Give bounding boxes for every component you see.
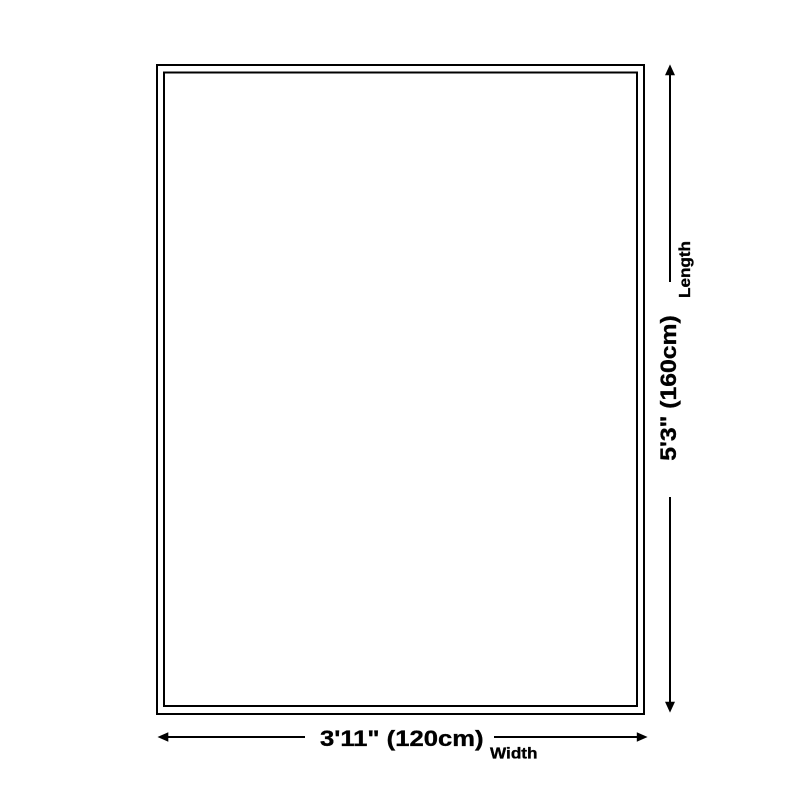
svg-text:Width: Width: [490, 745, 538, 762]
svg-text:Length: Length: [677, 241, 694, 298]
svg-text:5'3" (160cm): 5'3" (160cm): [656, 315, 681, 461]
svg-text:3'11" (120cm): 3'11" (120cm): [320, 726, 484, 751]
